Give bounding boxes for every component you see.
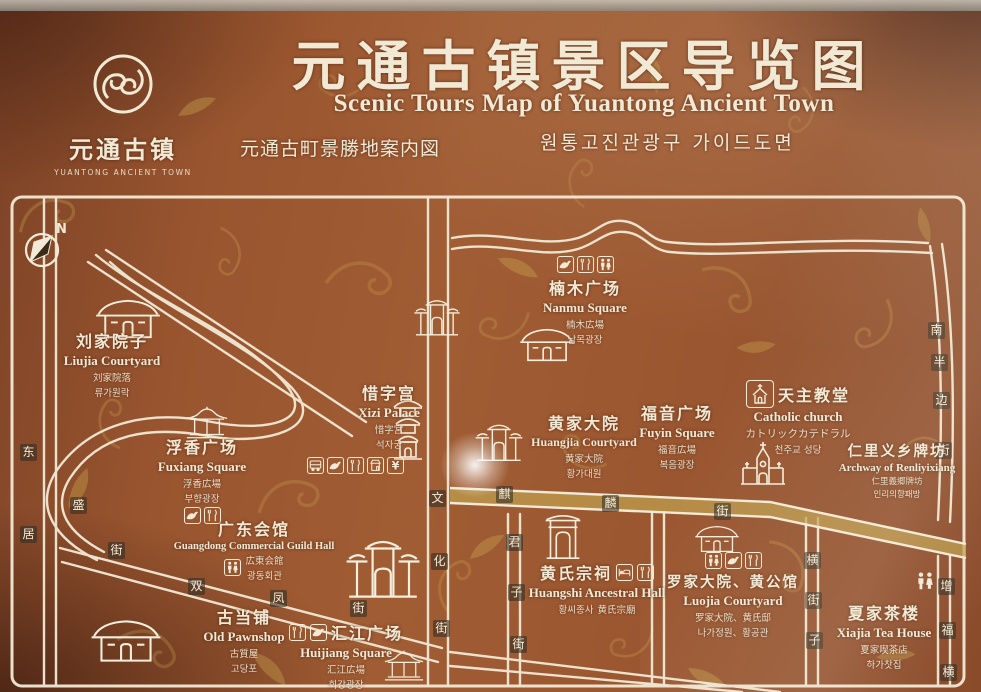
poi-name-ja: 浮香広場 (134, 476, 270, 490)
street-plate-qilin: 街 (714, 503, 731, 520)
poi-name-ko: 남목광장 (518, 332, 652, 346)
poi-name-en: Catholic church (702, 409, 894, 425)
poi-xizi-palace: 惜字宫 Xizi Palace 惜字宮 석자궁 (318, 380, 460, 476)
poi-name-ja: 黄氏宗廟 (597, 602, 635, 616)
poi-name-ja: 惜字宮 (318, 422, 460, 436)
poi-name-zh: 黄氏宗祠 (540, 560, 612, 584)
bus-icon (307, 457, 324, 474)
poi-name-ko: 복음광장 (628, 457, 726, 471)
poi-name-zh: 惜字宫 (318, 380, 460, 404)
poi-name-ko: 광동회관 (245, 568, 283, 582)
street-plate-wenhua: 化 (431, 553, 448, 570)
poi-liujia-courtyard: 刘家院子 Liujia Courtyard 刘家院落 류가원락 (14, 328, 210, 399)
restroom-icon (705, 552, 722, 569)
poi-nanmu-square: 楠木广场 Nanmu Square 楠木広場 남목광장 (518, 254, 652, 346)
street-plate-qilin: 麟 (602, 495, 619, 512)
restroom-icon (914, 570, 936, 592)
street-plate-dongsheng: 街 (108, 542, 125, 559)
restroom-icon (224, 559, 241, 576)
scenic-bird-icon (557, 256, 574, 273)
street-plate-hengjiezi: 街 (805, 592, 822, 609)
bed-icon (616, 564, 633, 581)
poi-name-zh: 刘家院子 (14, 328, 210, 352)
poi-name-zh: 仁里义乡牌坊 (816, 440, 978, 461)
restaurant-icon (289, 624, 306, 641)
poi-name-ko: 류가원락 (14, 385, 210, 399)
poi-name-zh: 广东会馆 (156, 516, 352, 540)
poi-name-en: Huangshi Ancestral Hall (524, 585, 670, 601)
poi-name-ko: 황씨종사 (559, 602, 594, 616)
restaurant-icon (347, 457, 364, 474)
poi-name-ko: 부향광장 (134, 491, 270, 505)
street-plate-junzi: 子 (508, 584, 525, 601)
street-plate-junzi: 君 (506, 534, 523, 551)
street-plate-zengfu: 福 (939, 622, 956, 639)
poi-name-ja: 楠木広場 (518, 317, 652, 331)
poi-name-ja: 夏家喫茶店 (828, 642, 940, 656)
street-plate-wenhua: 街 (433, 620, 450, 637)
street-plate-zengfu: 增 (938, 578, 955, 595)
street-plate-nanbanbian: 南 (928, 322, 945, 339)
poi-huijiang-square: 汇江广场 Huijiang Square 汇江広場 회강광장 (278, 620, 414, 691)
restaurant-icon (577, 256, 594, 273)
poi-name-en: Liujia Courtyard (14, 353, 210, 369)
scenic-bird-icon (310, 624, 327, 641)
poi-name-ja: 汇江広場 (278, 662, 414, 676)
poi-xiajia-tea-house: 夏家茶楼 Xiajia Tea House 夏家喫茶店 하가찻집 (828, 600, 940, 671)
street-plate-qilin: 麒 (496, 486, 513, 503)
poi-name-zh: 天主教堂 (778, 382, 850, 406)
street-plate-zengfu: 横 (940, 664, 957, 681)
poi-name-zh: 浮香广场 (134, 434, 270, 458)
street-plate-hengjiezi: 横 (804, 552, 821, 569)
poi-name-en: Huijiang Square (278, 645, 414, 661)
poi-name-ko: 하가찻집 (828, 657, 940, 671)
street-plate-shuangfeng: 街 (350, 600, 367, 617)
poi-luojia-courtyard: 罗家大院、黄公馆 Luojia Courtyard 罗家大院、黄氏邸 나가정원、… (662, 550, 804, 639)
poi-name-zh: 楠木广场 (518, 275, 652, 299)
street-plate-wenhua: 文 (429, 490, 446, 507)
poi-name-ko: 나가정원、황공관 (662, 625, 804, 639)
street-plate-junzi: 街 (510, 636, 527, 653)
restaurant-icon (745, 552, 762, 569)
currency-yuan-icon (387, 457, 404, 474)
poi-name-ja: 罗家大院、黄氏邸 (662, 610, 804, 624)
street-plate-hengjiezi: 子 (806, 632, 823, 649)
map-sign-photo: ¥ (0, 0, 981, 692)
poi-name-zh: 罗家大院、黄公馆 (662, 571, 804, 592)
poi-name-en: Xizi Palace (318, 405, 460, 421)
restaurant-icon (637, 564, 654, 581)
shop-icon (367, 457, 384, 474)
street-plate-nanbanbian: 半 (931, 354, 948, 371)
compass-north-label: N (56, 222, 67, 237)
poi-name-ko: 석자궁 (318, 437, 460, 451)
church-icon (746, 380, 774, 408)
poi-name-en: Nanmu Square (518, 300, 652, 316)
poi-fuxiang-square: 浮香广场 Fuxiang Square 浮香広場 부향광장 (134, 434, 270, 526)
poi-name-ko: 회강광장 (278, 677, 414, 691)
poi-name-ja: カトリックカテドラル (702, 426, 894, 441)
map-labels: N 东 盛 街 双 凤 街 文 化 街 麒 麟 街 君 子 街 南 半 边 街 … (0, 0, 981, 692)
poi-name-en: Archway of Renliyixiang (816, 462, 978, 474)
street-plate-nanbanbian: 边 (933, 392, 950, 409)
restroom-icon (597, 256, 614, 273)
poi-name-ja: 広東会館 (245, 553, 283, 567)
poi-name-en: Luojia Courtyard (662, 593, 804, 609)
poi-name-zh: 夏家茶楼 (828, 600, 940, 624)
scenic-bird-icon (725, 552, 742, 569)
poi-name-en: Fuxiang Square (134, 459, 270, 475)
poi-name-en: Xiajia Tea House (828, 625, 940, 641)
poi-name-ja: 刘家院落 (14, 370, 210, 384)
poi-name-en: Guangdong Commercial Guild Hall (156, 541, 352, 552)
poi-name-zh: 汇江广场 (331, 620, 403, 644)
poi-huangshi-ancestral-hall: 黄氏宗祠 Huangshi Ancestral Hall 황씨종사 黄氏宗廟 (524, 560, 670, 616)
scenic-bird-icon (327, 457, 344, 474)
street-plate-dongsheng: 东 (20, 444, 37, 461)
poi-guangdong-guild-hall: 广东会馆 Guangdong Commercial Guild Hall 広東会… (156, 516, 352, 582)
poi-name-ko: 인리의향패방 (816, 488, 978, 500)
poi-name-ja: 仁里義郷牌坊 (816, 475, 978, 487)
street-plate-dongsheng: 盛 (70, 497, 87, 514)
street-plate-ju: 居 (20, 526, 37, 543)
poi-renliyixiang-archway: 仁里义乡牌坊 Archway of Renliyixiang 仁里義郷牌坊 인리… (816, 440, 978, 500)
